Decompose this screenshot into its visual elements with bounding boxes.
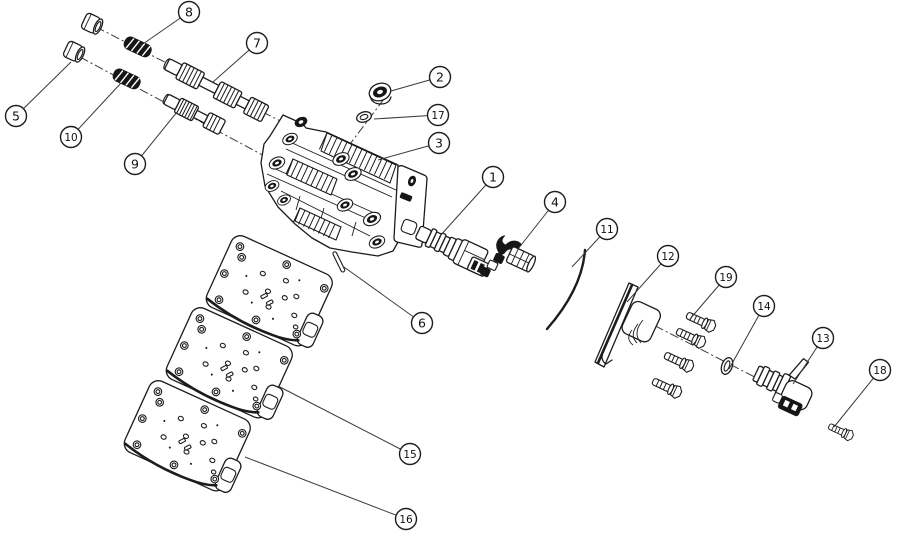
callout-number-2: 2 — [436, 70, 444, 85]
callout-number-1: 1 — [489, 170, 497, 185]
callout-number-9: 9 — [131, 157, 139, 172]
callout-number-8: 8 — [185, 5, 193, 20]
callout-number-6: 6 — [418, 316, 426, 331]
callout-number-4: 4 — [551, 195, 559, 210]
callout-number-5: 5 — [12, 109, 20, 124]
callout-number-17: 17 — [431, 110, 444, 122]
callout-number-13: 13 — [816, 333, 829, 345]
callout-number-14: 14 — [757, 301, 771, 313]
callout-number-19: 19 — [719, 272, 732, 284]
callout-number-15: 15 — [403, 449, 416, 461]
callout-number-7: 7 — [253, 36, 261, 51]
callout-number-3: 3 — [435, 136, 443, 151]
diagram-svg: 87510921731411612191413181516 — [0, 0, 900, 539]
callout-number-18: 18 — [873, 365, 886, 377]
callout-number-10: 10 — [64, 132, 77, 144]
exploded-parts-diagram: 87510921731411612191413181516 — [0, 0, 900, 539]
callout-number-11: 11 — [600, 224, 613, 236]
callout-number-12: 12 — [661, 251, 674, 263]
callout-number-16: 16 — [399, 514, 413, 526]
